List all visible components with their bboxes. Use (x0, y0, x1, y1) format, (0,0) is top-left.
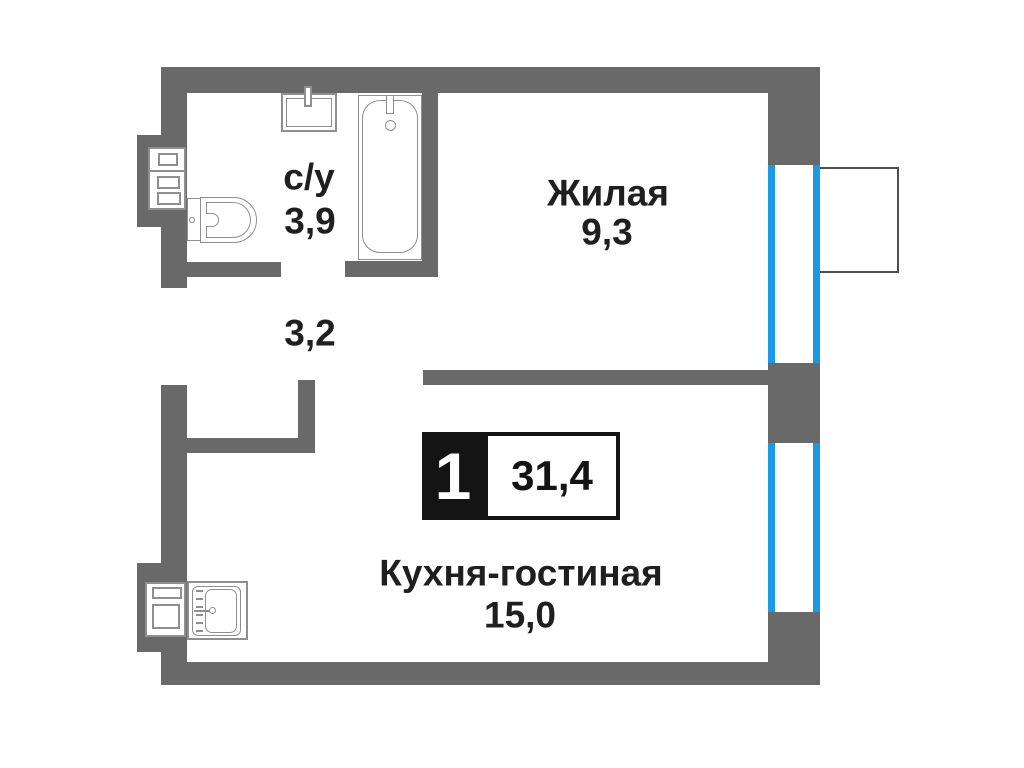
kitchen-sink-faucet-knob (209, 607, 216, 614)
bathroom-shaft-cell (158, 153, 178, 166)
wall-right-between-windows (768, 363, 820, 443)
badge-room-count: 1 (422, 432, 484, 520)
window-glass-line (813, 443, 820, 612)
bathroom-shaft-divider (148, 170, 186, 172)
room-area-hallway: 3,2 (284, 315, 335, 352)
wall-bottom (161, 662, 820, 685)
bathtub-faucet (386, 95, 394, 114)
room-area-kitchen: 15,0 (484, 597, 556, 634)
bathroom-sink-faucet (304, 86, 312, 107)
room-label-bathroom: с/у (283, 159, 334, 196)
bathroom-shaft-cell (157, 192, 181, 205)
badge-total-area: 31,4 (484, 432, 620, 520)
wall-left-upper (161, 67, 187, 135)
wall-top (161, 67, 820, 93)
wall-living-kitchen-divider (423, 370, 770, 385)
kitchen-cabinet-cell (152, 587, 182, 599)
wall-right-top (768, 93, 820, 165)
room-label-living: Жилая (547, 175, 669, 212)
wall-right-bottom (768, 612, 820, 685)
apartment-badge: 1 31,4 (422, 432, 620, 520)
floorplan: с/у 3,9 Жилая 9,3 3,2 Кухня-гостиная 15,… (0, 0, 1024, 768)
wall-hallway-stub (298, 380, 315, 453)
window-glass-line (768, 165, 775, 363)
bathtub-drain (385, 120, 396, 131)
window-glass-line (768, 443, 775, 612)
room-area-bathroom: 3,9 (284, 203, 335, 240)
wall-bathroom-bottom-left (187, 262, 281, 277)
room-area-living: 9,3 (581, 214, 632, 251)
wall-bathroom-bottom-right (345, 261, 438, 277)
bathroom-shaft-cell (157, 176, 180, 189)
wall-bathroom-right (422, 93, 438, 261)
kitchen-sink-drainer (196, 590, 203, 634)
kitchen-cabinet-cell (152, 604, 180, 629)
wall-hallway-horizontal (187, 438, 315, 453)
toilet-button (189, 217, 195, 223)
wall-left-mid (161, 227, 187, 288)
window-glass-line (813, 165, 820, 363)
balcony-outline (818, 167, 899, 273)
room-label-kitchen: Кухня-гостиная (379, 555, 662, 592)
